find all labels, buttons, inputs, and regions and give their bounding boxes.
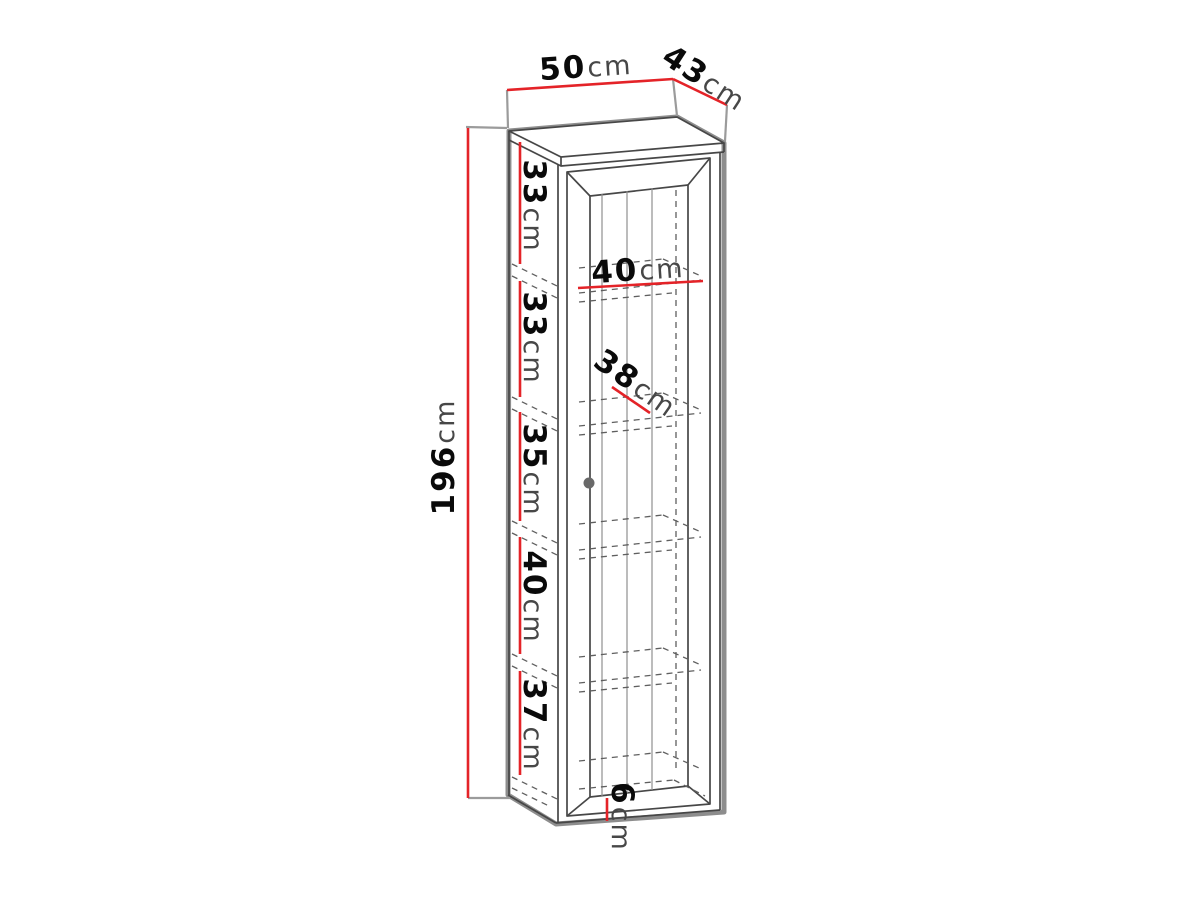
width-dimension-line [507, 79, 673, 90]
depth-dimension-line [673, 79, 727, 105]
door-knob [584, 478, 595, 489]
cabinet-drawing [0, 0, 1200, 900]
cabinet-silhouette [508, 117, 724, 824]
dimension-diagram: 50 cm 43 cm 196 cm 33 cm 33 cm 35 cm 40 … [0, 0, 1200, 900]
